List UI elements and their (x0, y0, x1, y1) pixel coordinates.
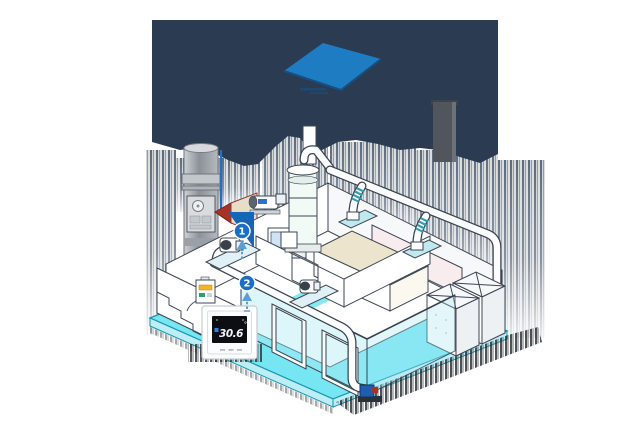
hotspot-1-label: 1 (239, 227, 246, 238)
diagram-svg: 30.6 ° 1 2 (0, 0, 640, 425)
scrubber-pump (281, 232, 297, 248)
panel-marking (300, 88, 326, 91)
stack-control-box (187, 196, 215, 232)
mode-icon (215, 328, 219, 332)
thermostat-button[interactable] (220, 349, 225, 351)
temperature-value: 30.6 (219, 328, 243, 340)
hotspot-2-label: 2 (244, 279, 251, 290)
temperature-unit: ° (244, 321, 247, 328)
isometric-cleanroom-diagram: 30.6 ° 1 2 (0, 0, 640, 425)
thermostat-button[interactable] (229, 349, 234, 351)
thermostat-button[interactable] (237, 349, 242, 351)
stack-flange (182, 174, 220, 184)
thermostat[interactable]: 30.6 ° (202, 306, 257, 359)
rooftop-chimney (431, 100, 458, 162)
